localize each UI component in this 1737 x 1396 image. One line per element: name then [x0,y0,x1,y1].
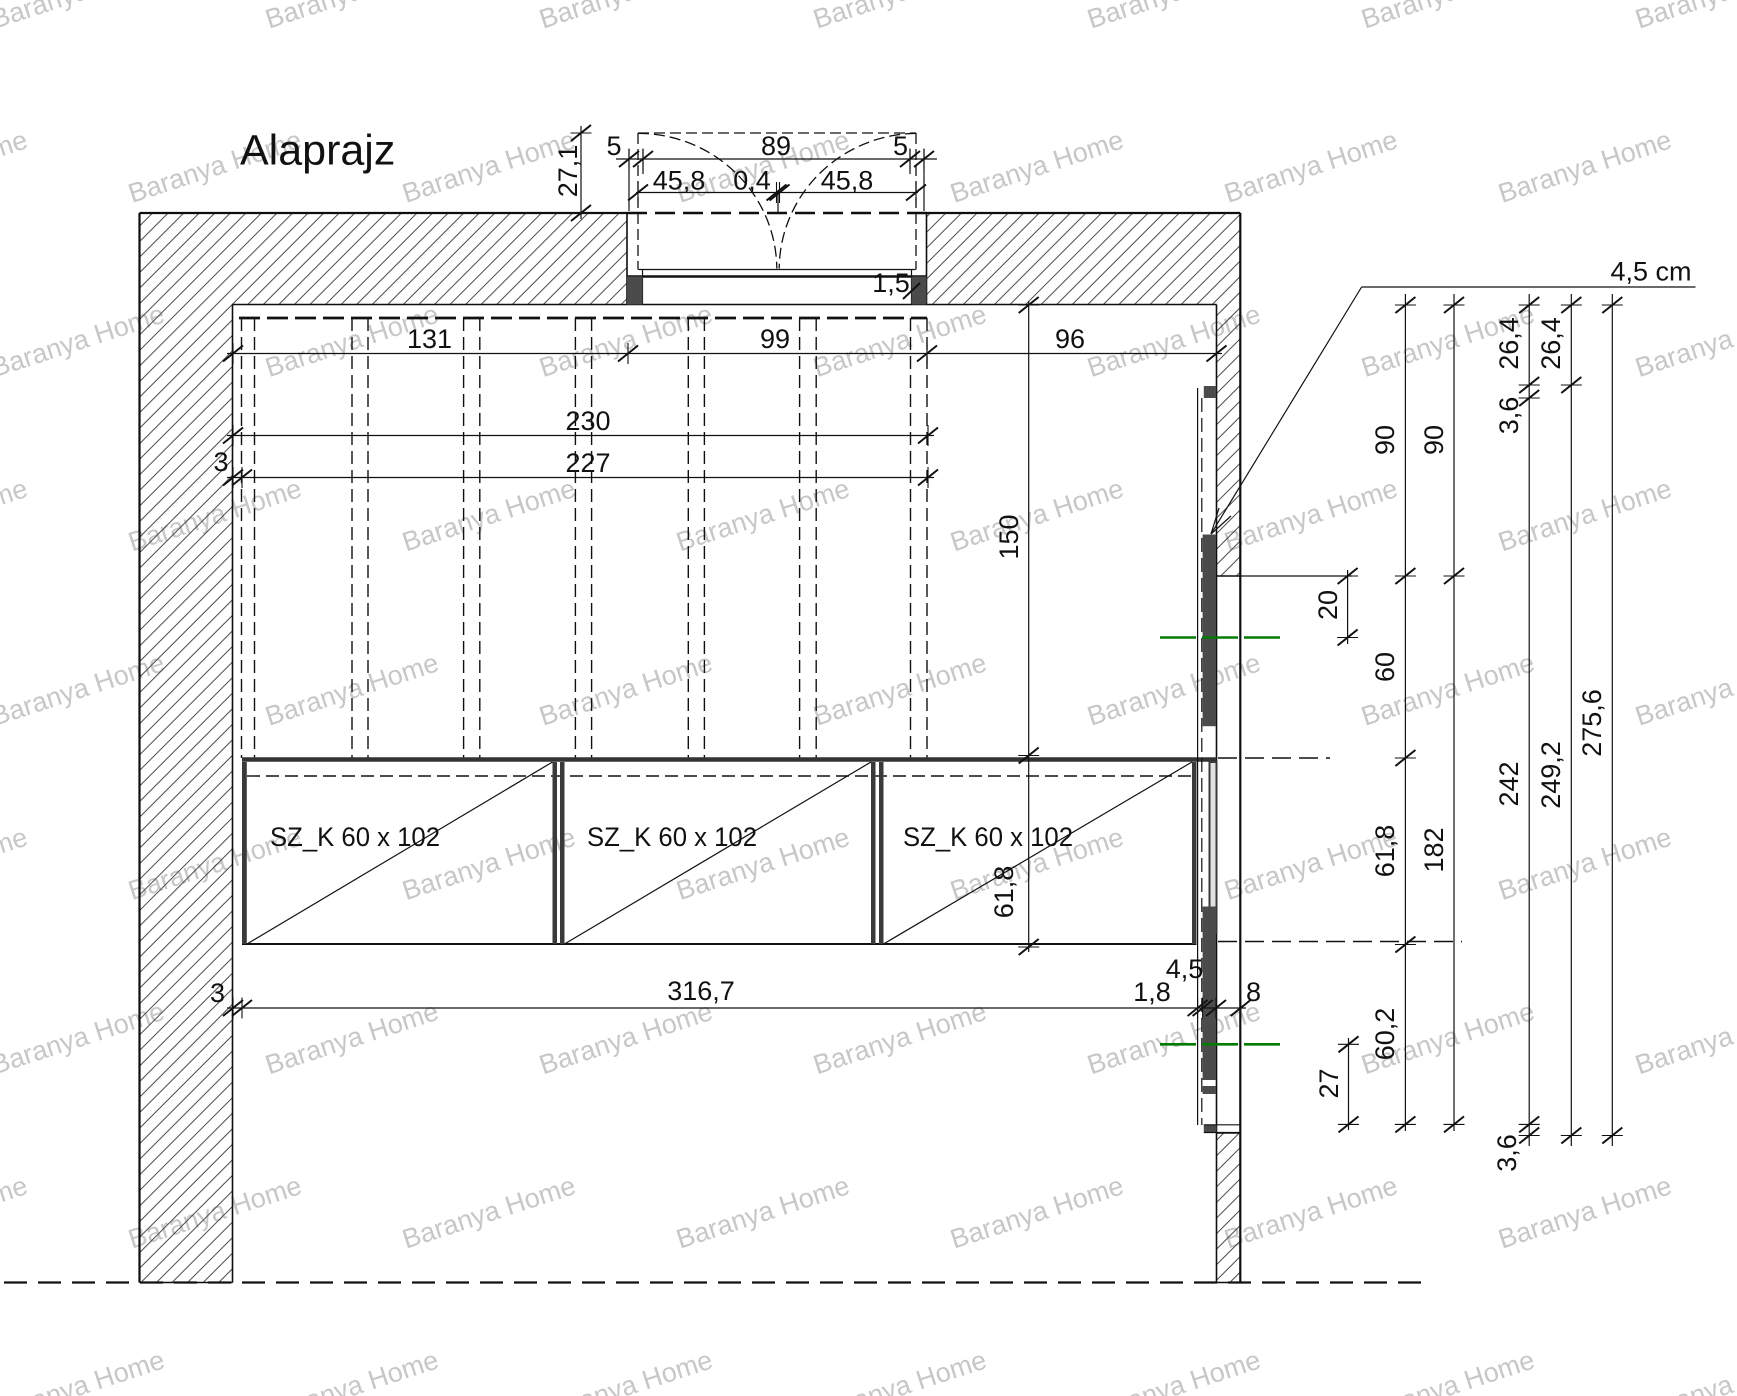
svg-text:Baranya Home: Baranya Home [1084,1345,1265,1396]
svg-text:SZ_K 60 x 102: SZ_K 60 x 102 [587,822,757,852]
svg-text:4,5 cm: 4,5 cm [1610,257,1691,287]
svg-text:20: 20 [1313,590,1343,620]
svg-text:5: 5 [893,131,908,161]
svg-text:Baranya Home: Baranya Home [1221,125,1402,209]
svg-text:Alaprajz: Alaprajz [240,127,395,175]
svg-text:5: 5 [606,131,621,161]
svg-text:8: 8 [1246,977,1261,1007]
svg-text:Baranya Home: Baranya Home [399,473,580,557]
svg-text:Baranya Home: Baranya Home [810,647,991,731]
svg-text:Baranya Home: Baranya Home [1632,0,1737,34]
svg-text:26,4: 26,4 [1494,317,1524,370]
svg-text:27,1: 27,1 [553,145,583,198]
svg-text:61,8: 61,8 [1370,825,1400,878]
svg-text:316,7: 316,7 [667,976,735,1006]
svg-text:Baranya Home: Baranya Home [1221,473,1402,557]
svg-text:Baranya Home: Baranya Home [1084,0,1265,34]
svg-text:3: 3 [210,978,225,1008]
svg-text:Baranya Home: Baranya Home [810,1345,991,1396]
svg-text:4,5: 4,5 [1166,954,1204,984]
svg-text:60,2: 60,2 [1370,1008,1400,1061]
svg-text:89: 89 [761,131,791,161]
svg-text:Baranya Home: Baranya Home [262,996,443,1080]
svg-text:Baranya Home: Baranya Home [1632,1345,1737,1396]
svg-text:Baranya Home: Baranya Home [399,1170,580,1254]
svg-text:Baranya Home: Baranya Home [1495,125,1676,209]
svg-text:Baranya Home: Baranya Home [0,822,31,906]
svg-text:Baranya Home: Baranya Home [810,996,991,1080]
svg-text:Baranya Home: Baranya Home [536,647,717,731]
svg-text:0,4: 0,4 [733,166,771,196]
svg-text:150: 150 [994,514,1024,559]
svg-text:249,2: 249,2 [1536,741,1566,809]
svg-text:Baranya Home: Baranya Home [1632,647,1737,731]
svg-text:45,8: 45,8 [821,166,874,196]
svg-text:SZ_K 60 x 102: SZ_K 60 x 102 [903,822,1073,852]
svg-text:Baranya Home: Baranya Home [1358,0,1539,34]
svg-text:45,8: 45,8 [653,166,706,196]
svg-text:Baranya Home: Baranya Home [0,125,31,209]
svg-text:131: 131 [407,324,452,354]
svg-text:Baranya Home: Baranya Home [947,1170,1128,1254]
svg-text:Baranya Home: Baranya Home [947,473,1128,557]
svg-text:90: 90 [1419,425,1449,455]
svg-text:182: 182 [1419,827,1449,872]
svg-text:61,8: 61,8 [989,866,1019,919]
svg-text:26,4: 26,4 [1536,317,1566,370]
svg-text:Baranya Home: Baranya Home [1221,1170,1402,1254]
svg-text:Baranya Home: Baranya Home [810,0,991,34]
svg-text:Baranya Home: Baranya Home [947,125,1128,209]
svg-text:Baranya Home: Baranya Home [1495,822,1676,906]
svg-text:3: 3 [213,447,228,477]
svg-text:Baranya Home: Baranya Home [0,473,31,557]
svg-text:Baranya Home: Baranya Home [536,0,717,34]
svg-text:Baranya Home: Baranya Home [262,0,443,34]
svg-text:27: 27 [1314,1068,1344,1098]
svg-text:Baranya Home: Baranya Home [0,0,168,34]
svg-text:96: 96 [1055,324,1085,354]
svg-text:Baranya Home: Baranya Home [0,1170,31,1254]
svg-text:99: 99 [760,324,790,354]
svg-text:Baranya Home: Baranya Home [1632,996,1737,1080]
svg-text:Baranya Home: Baranya Home [0,1345,168,1396]
svg-text:1,5: 1,5 [872,268,910,298]
svg-text:Baranya Home: Baranya Home [1495,1170,1676,1254]
svg-text:Baranya Home: Baranya Home [1084,996,1265,1080]
svg-text:Baranya Home: Baranya Home [673,473,854,557]
svg-text:Baranya Home: Baranya Home [1084,647,1265,731]
svg-text:227: 227 [565,448,610,478]
svg-text:3,6: 3,6 [1494,397,1524,435]
svg-text:275,6: 275,6 [1577,689,1607,757]
svg-text:Baranya Home: Baranya Home [1632,299,1737,383]
svg-text:Baranya Home: Baranya Home [810,299,991,383]
svg-text:Baranya Home: Baranya Home [536,1345,717,1396]
svg-text:90: 90 [1370,425,1400,455]
svg-text:Baranya Home: Baranya Home [262,1345,443,1396]
svg-text:SZ_K 60 x 102: SZ_K 60 x 102 [270,822,440,852]
svg-text:Baranya Home: Baranya Home [536,299,717,383]
svg-text:230: 230 [565,406,610,436]
svg-text:Baranya Home: Baranya Home [673,1170,854,1254]
svg-text:60: 60 [1370,652,1400,682]
svg-text:Baranya Home: Baranya Home [1358,1345,1539,1396]
svg-text:1,8: 1,8 [1133,977,1171,1007]
svg-text:Baranya Home: Baranya Home [536,996,717,1080]
svg-text:242: 242 [1494,761,1524,806]
svg-text:Baranya Home: Baranya Home [1495,473,1676,557]
svg-text:3,6: 3,6 [1492,1134,1522,1172]
